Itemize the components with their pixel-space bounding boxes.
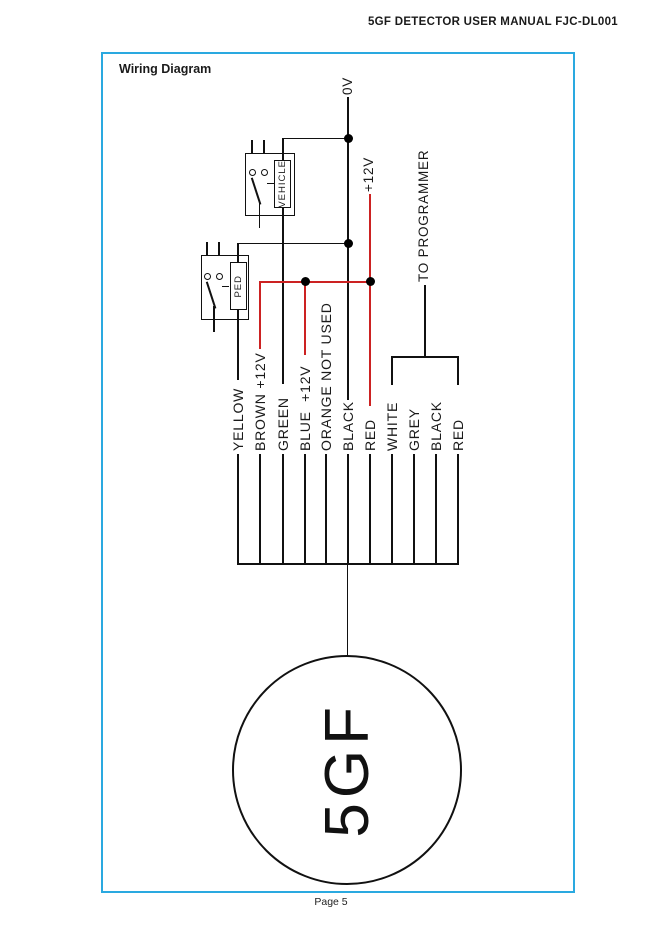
document-header: 5GF DETECTOR USER MANUAL FJC-DL001 [368, 16, 618, 28]
junction-dot [366, 277, 375, 286]
wire-label-grey: GREY [406, 408, 422, 451]
ped-switch-contact-right [216, 273, 223, 280]
leader-line [304, 454, 306, 564]
diagram-title: Wiring Diagram [119, 62, 211, 76]
ped-switch-stub-bottom [213, 306, 215, 332]
programmer-bracket-drop-right [457, 356, 459, 385]
label-0v: 0V [340, 77, 356, 95]
relay-vehicle-label-box: VEHICLE [274, 160, 291, 208]
wire-line-brown-12v [259, 281, 261, 349]
wire-label-red: RED [362, 419, 378, 451]
wire-label-yellow: YELLOW [230, 388, 246, 451]
leader-line [457, 454, 459, 564]
leader-line [282, 454, 284, 564]
wire-label-green: GREEN [275, 397, 291, 451]
vehicle-switch-stub-left [251, 140, 253, 154]
leader-line [391, 454, 393, 564]
leader-line [259, 454, 261, 564]
manual-page: 5GF DETECTOR USER MANUAL FJC-DL001 Wirin… [0, 0, 662, 936]
vehicle-switch-contact-left [249, 169, 256, 176]
leader-line [435, 454, 437, 564]
detector-drop-line [347, 563, 349, 656]
wire-label-white: WHITE [384, 402, 400, 451]
relay-ped-label: PED [233, 275, 244, 298]
relay-ped-label-box: PED [230, 262, 247, 310]
wire-label-brown: BROWN +12V [252, 352, 268, 451]
leader-line [369, 454, 371, 564]
detector-circle: 5GF [232, 655, 462, 885]
wire-label-blue: BLUE +12V [297, 366, 313, 451]
wire-line-12v-red [369, 194, 371, 406]
ped-switch-dash [222, 286, 229, 288]
label-plus-12v: +12V [361, 157, 377, 192]
wire-label-red-2: RED [450, 419, 466, 451]
vehicle-switch-stub-right [263, 140, 265, 154]
wire-label-black-2: BLACK [428, 401, 444, 451]
leader-line [237, 454, 239, 564]
ped-switch-stub-left [206, 242, 208, 256]
wire-line-ped-to-0v [237, 243, 348, 245]
wire-label-orange: ORANGE NOT USED [318, 302, 334, 451]
junction-dot [344, 239, 353, 248]
vehicle-switch-dash [267, 183, 274, 185]
wire-line-vehicle-to-0v [282, 138, 348, 140]
page-number: Page 5 [0, 896, 662, 908]
label-to-programmer: TO PROGRAMMER [416, 150, 432, 282]
vehicle-switch-contact-right [261, 169, 268, 176]
ped-switch-stub-right [218, 242, 220, 256]
wire-line-red-bus [259, 281, 371, 283]
wire-line-blue-12v [304, 281, 306, 355]
wiring-diagram-panel: Wiring Diagram [101, 52, 575, 893]
leader-line [413, 454, 415, 564]
junction-dot [301, 277, 310, 286]
programmer-bracket-drop-left [391, 356, 393, 385]
vehicle-switch-stub-bottom [259, 202, 261, 228]
leader-line [347, 454, 349, 564]
ped-switch-contact-left [204, 273, 211, 280]
wire-line-programmer [424, 285, 426, 357]
junction-dot [344, 134, 353, 143]
programmer-bracket [391, 356, 459, 358]
device-label: 5GF [312, 702, 383, 838]
leader-line [325, 454, 327, 564]
relay-vehicle-label: VEHICLE [277, 160, 288, 208]
wire-label-black: BLACK [340, 401, 356, 451]
